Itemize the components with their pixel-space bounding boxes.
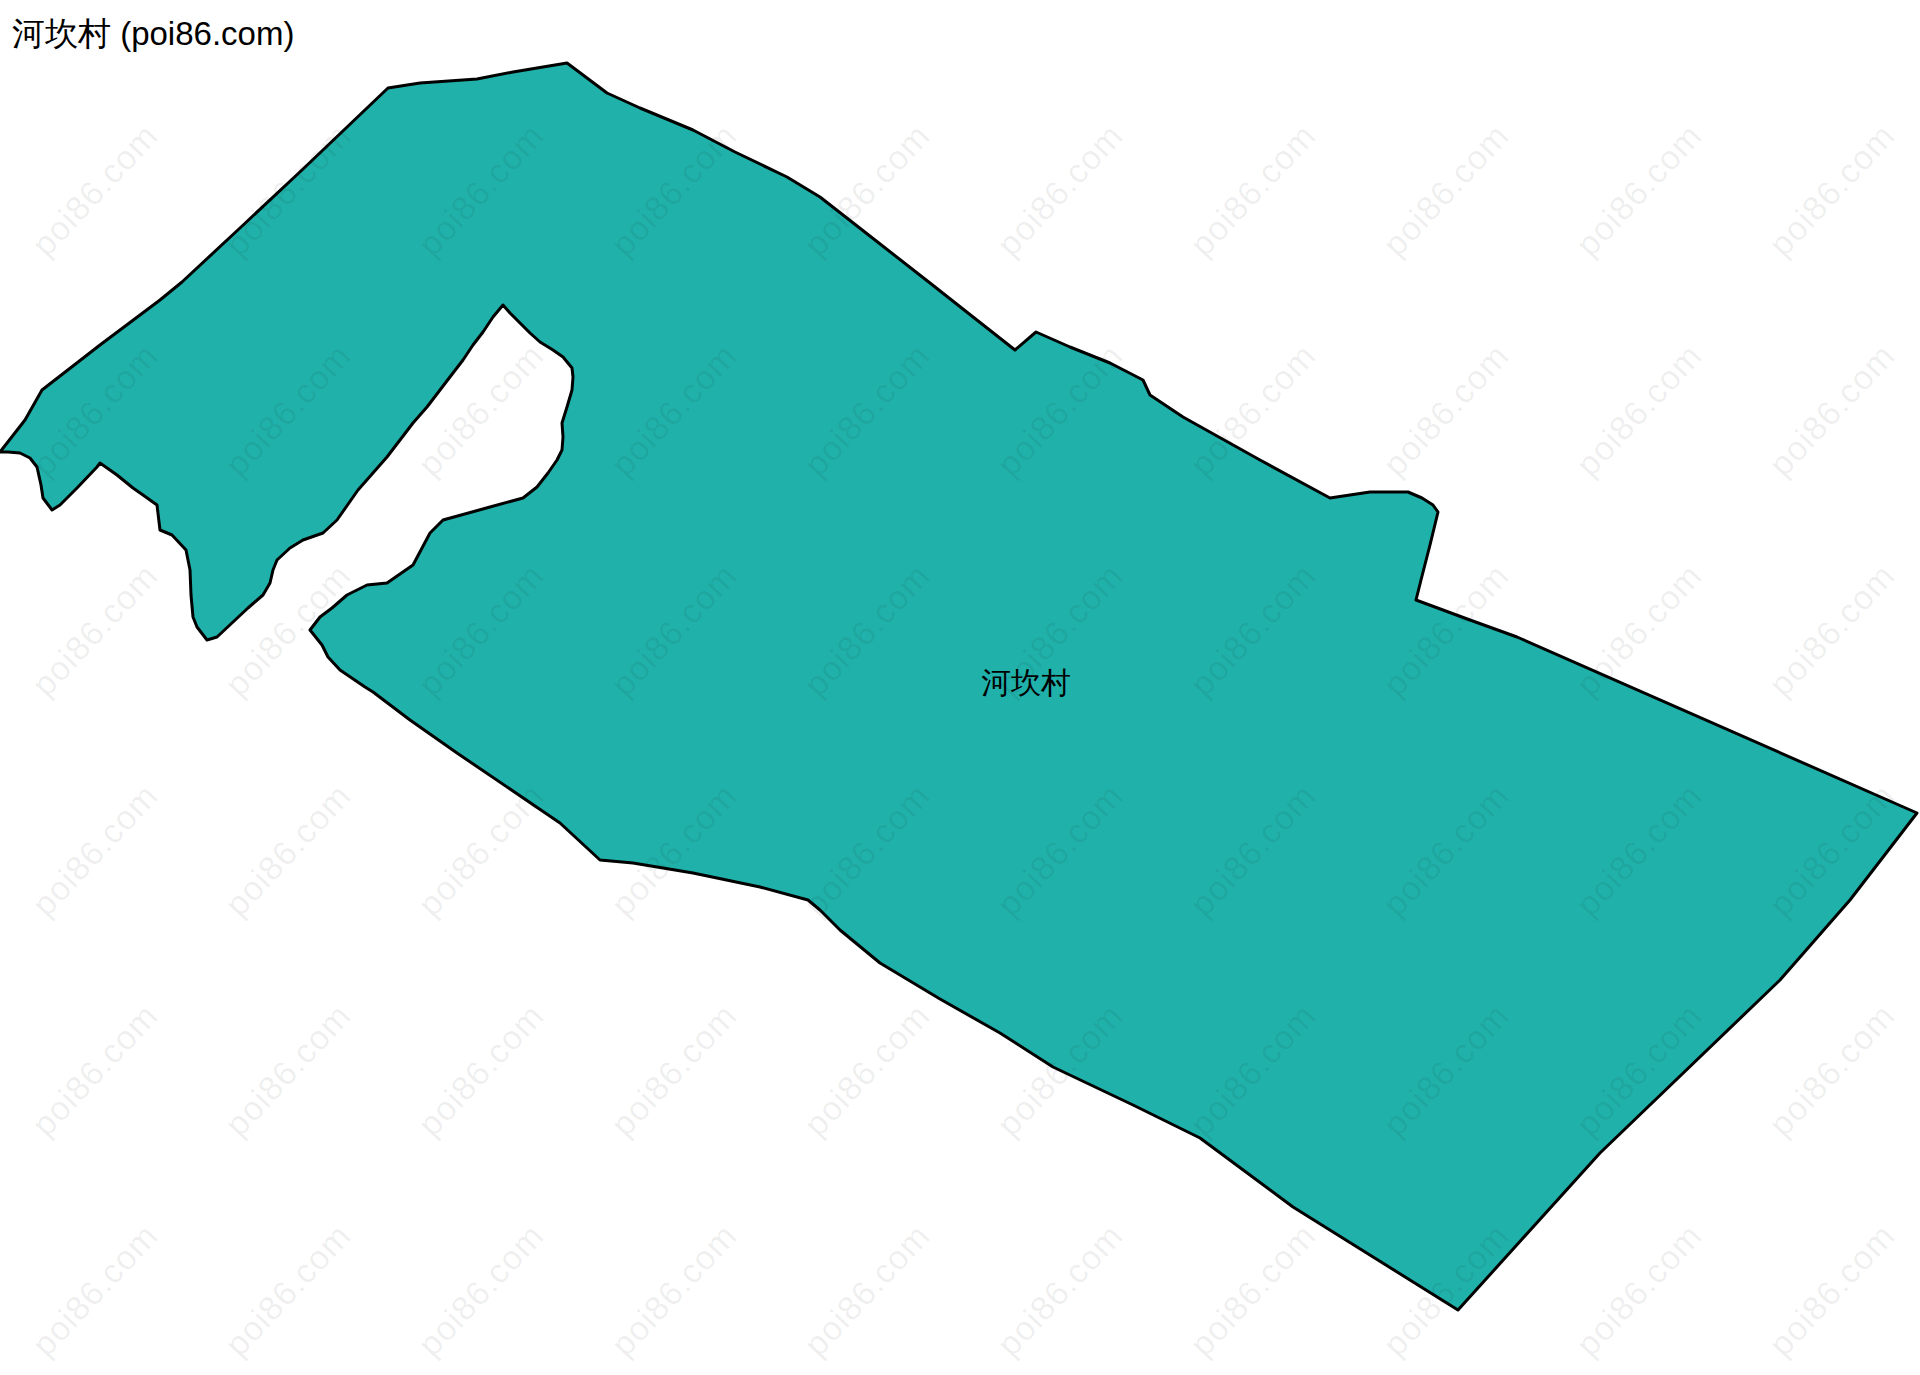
boundary-map [0,0,1920,1375]
village-label: 河坎村 [981,663,1071,704]
village-boundary-polygon [0,63,1917,1310]
map-canvas: poi86.compoi86.compoi86.compoi86.compoi8… [0,0,1920,1375]
map-title: 河坎村 (poi86.com) [12,12,294,57]
